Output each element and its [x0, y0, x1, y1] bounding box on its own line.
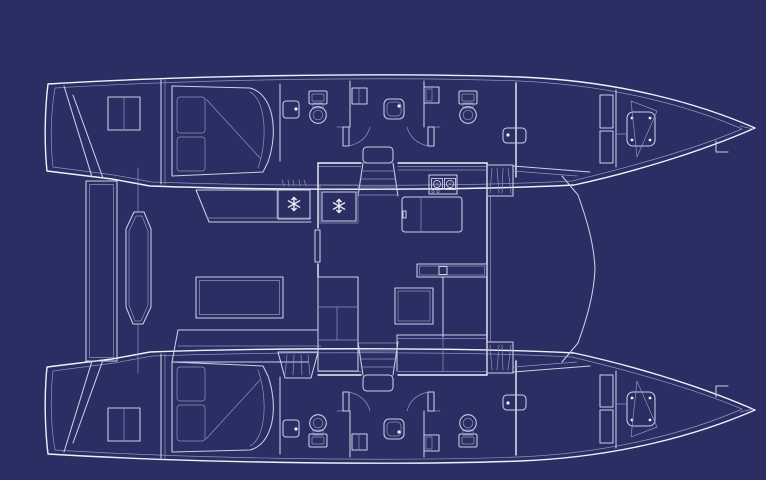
nav-desk [417, 264, 487, 277]
cockpit-lounge [126, 168, 151, 373]
snowflake-icon [288, 198, 299, 211]
hull-bottom [45, 269, 755, 463]
saloon [278, 163, 487, 371]
freezer-box [320, 185, 358, 223]
snowflake-icon [333, 200, 344, 213]
burner-icon [431, 178, 442, 189]
cockpit [86, 168, 321, 378]
fridge-box [278, 190, 310, 219]
cabinet-handle [403, 211, 406, 218]
sliding-door [315, 230, 320, 262]
galley [398, 170, 487, 232]
galley-cabinet [402, 197, 462, 232]
hull-top [45, 75, 755, 269]
cockpit-table [196, 277, 283, 318]
catamaran-deck-plan [0, 0, 766, 480]
cockpit-bench-fwd [172, 330, 321, 378]
blueprint-canvas [0, 0, 766, 480]
saloon-steps-block [318, 277, 358, 371]
coffee-table [395, 288, 433, 324]
aft-platform [86, 181, 117, 361]
burner-icon [444, 178, 455, 189]
